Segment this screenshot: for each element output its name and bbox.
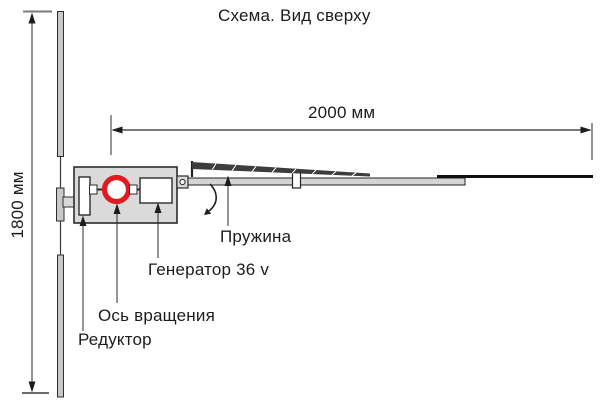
diagram-title: Схема. Вид сверху: [218, 7, 371, 25]
generator-block: [140, 178, 172, 203]
spring-body: [192, 162, 370, 177]
arrow-left-icon: [112, 127, 123, 134]
reducer-label: Редуктор: [78, 331, 152, 349]
rotation-arrow: [204, 184, 216, 215]
rotation-axis-label: Ось вращения: [98, 307, 215, 325]
blade-upper-half: [58, 12, 64, 157]
machinery-housing: [74, 167, 177, 223]
schematic-canvas: Схема. Вид сверху 2000 мм 1800 мм Пружин…: [0, 0, 600, 404]
reducer-block: [79, 177, 90, 215]
arrow-down-icon: [29, 382, 36, 393]
shaft-coupling-left: [90, 185, 98, 194]
rotation-arc: [209, 184, 216, 211]
spring-label: Пружина: [220, 228, 291, 246]
blade-lower-half: [58, 255, 64, 397]
arrow-up-icon: [29, 13, 36, 24]
rotation-axis-marker: [105, 178, 129, 202]
shaft-coupling-right: [130, 185, 138, 194]
pivot-pin-icon: [180, 179, 185, 184]
generator-label: Генератор 36 v: [148, 261, 269, 279]
width-dimension-label: 2000 мм: [308, 104, 375, 122]
spring-clamp: [293, 172, 301, 188]
height-dimension-label: 1800 мм: [9, 165, 27, 245]
spring: [192, 161, 370, 177]
arrow-right-icon: [581, 127, 592, 134]
pivot-block: [177, 176, 188, 188]
